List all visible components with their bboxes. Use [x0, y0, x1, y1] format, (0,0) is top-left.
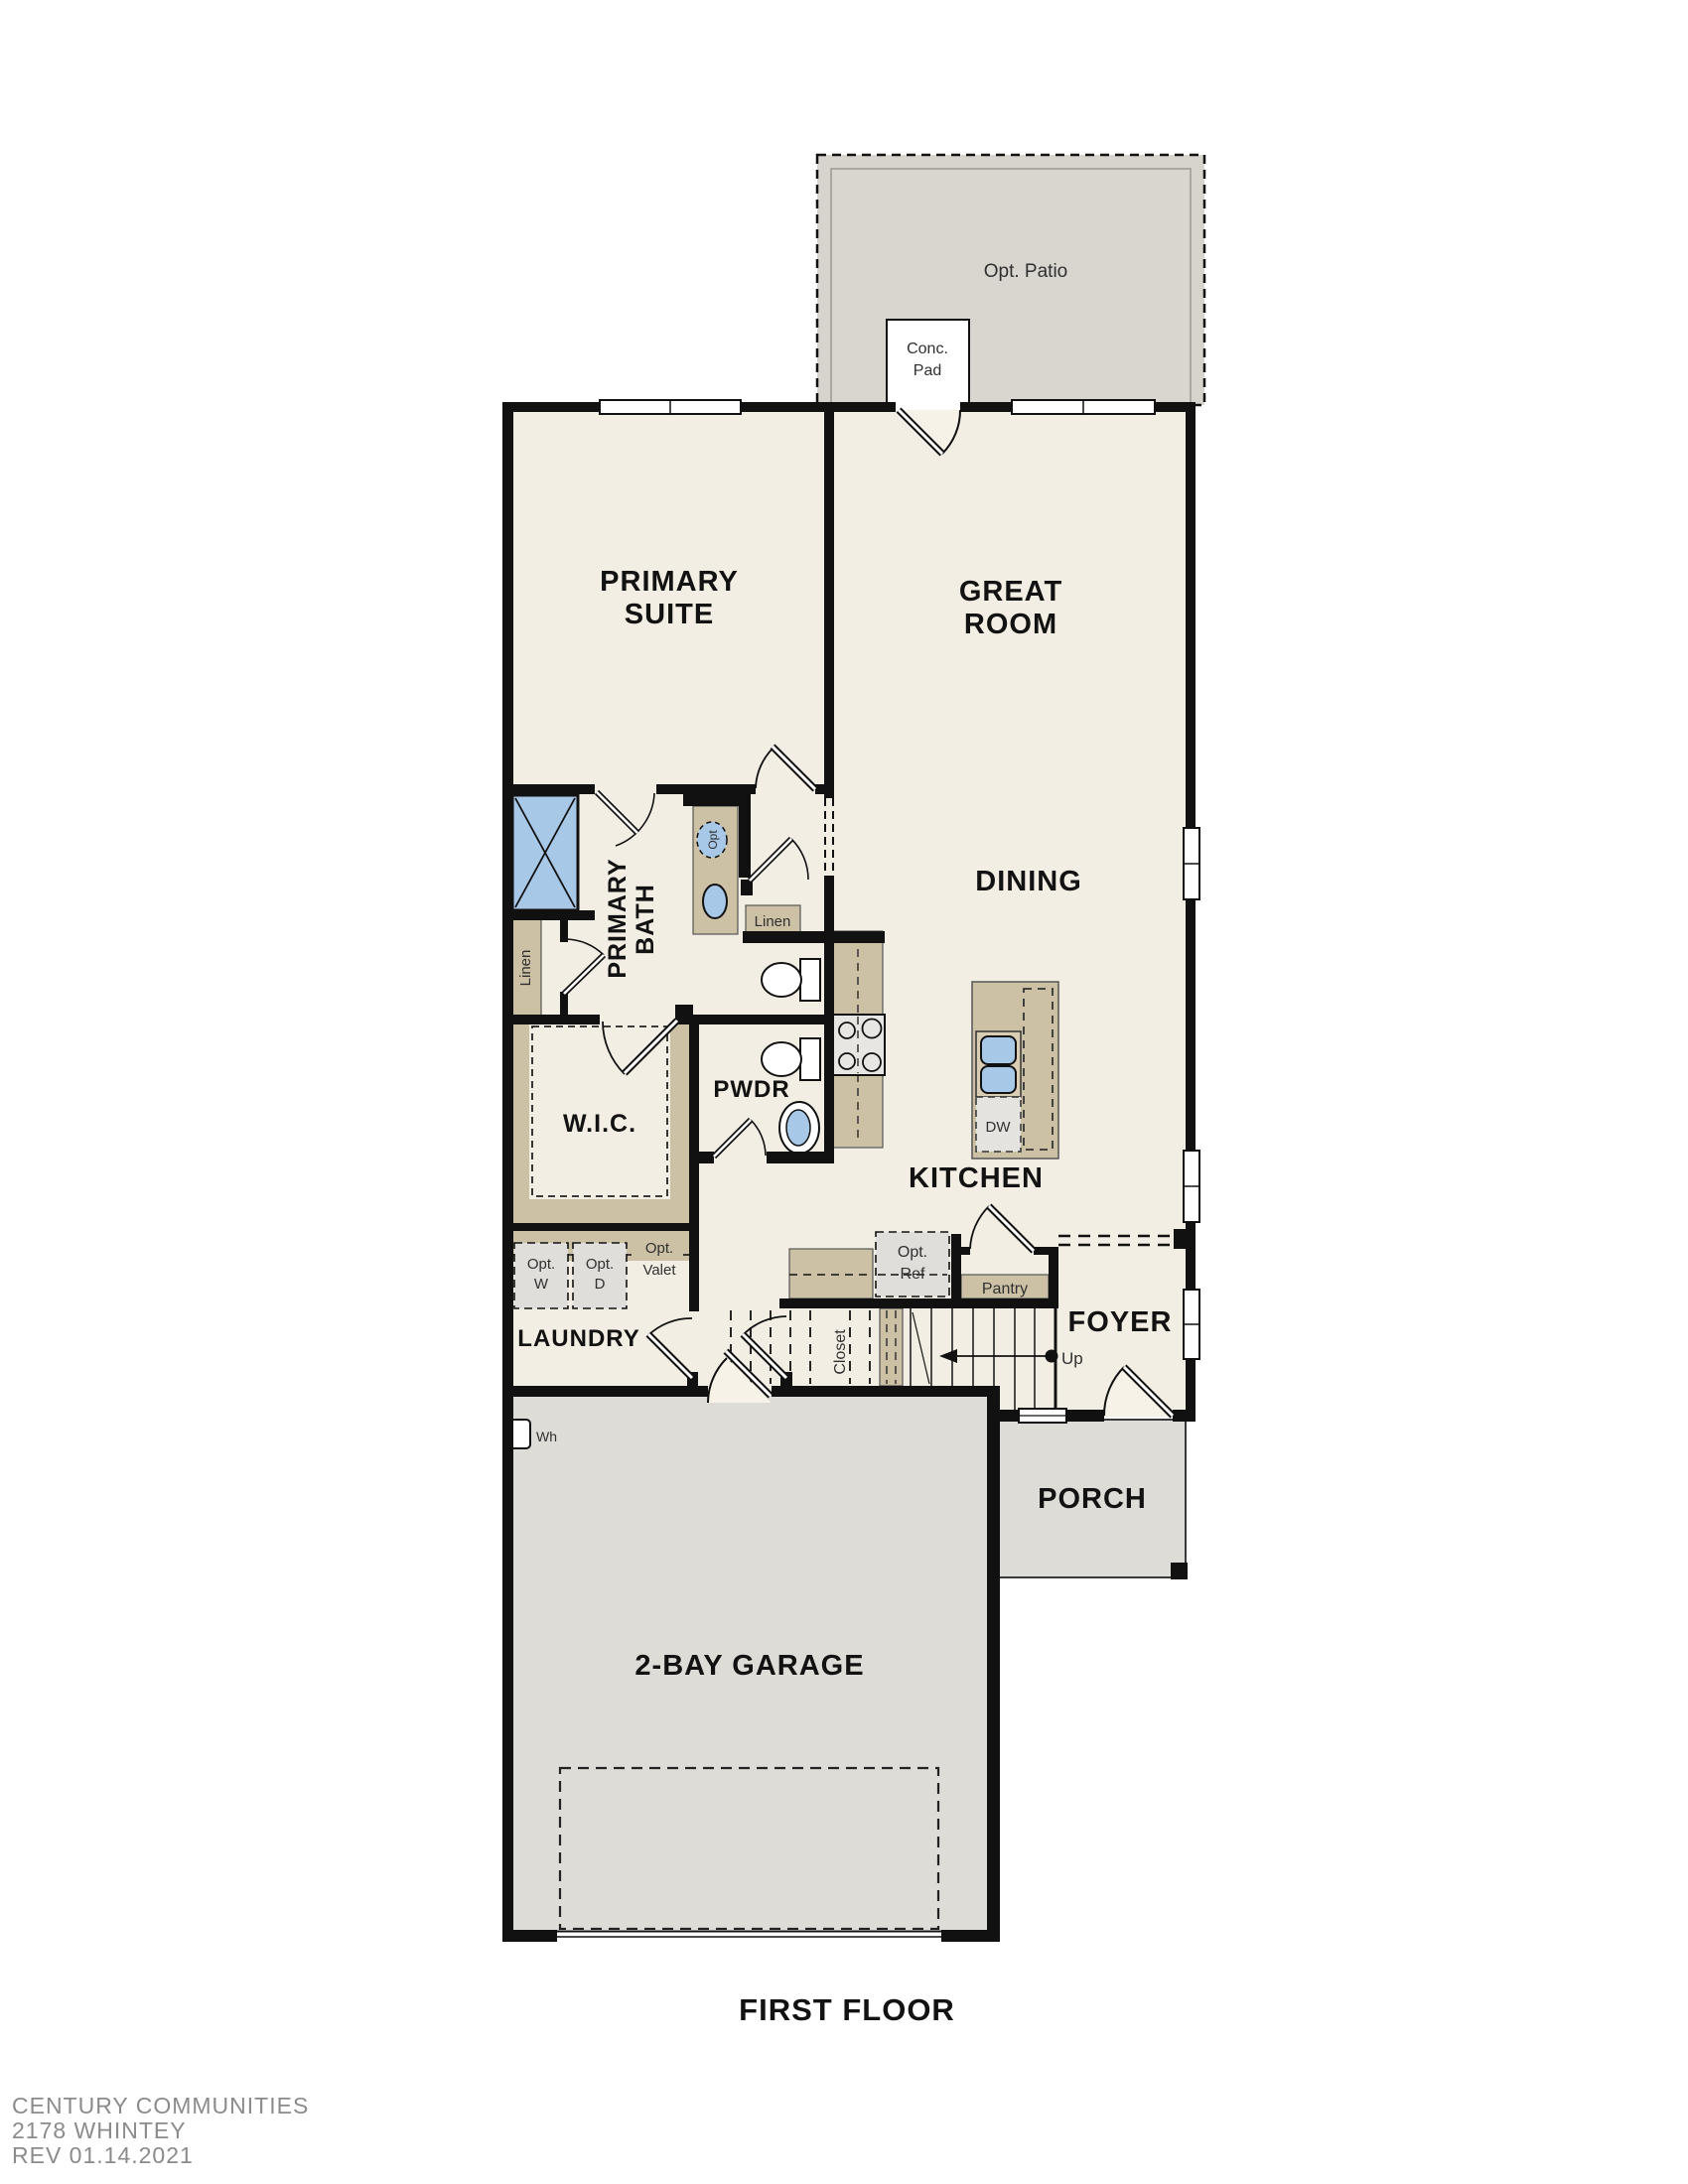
- svg-text:Ref: Ref: [901, 1266, 925, 1283]
- svg-text:ROOM: ROOM: [964, 609, 1057, 640]
- svg-text:W.I.C.: W.I.C.: [563, 1110, 636, 1138]
- svg-text:FIRST FLOOR: FIRST FLOOR: [739, 1992, 955, 2027]
- svg-text:Pantry: Pantry: [982, 1281, 1028, 1297]
- svg-text:PORCH: PORCH: [1038, 1483, 1147, 1515]
- svg-text:Linen: Linen: [755, 913, 791, 930]
- svg-text:Opt.: Opt.: [586, 1256, 614, 1273]
- svg-text:REV 01.14.2021: REV 01.14.2021: [12, 2142, 194, 2168]
- svg-text:GREAT: GREAT: [959, 576, 1062, 608]
- svg-text:Linen: Linen: [517, 950, 534, 987]
- svg-text:Opt.: Opt.: [645, 1240, 673, 1257]
- svg-text:Up: Up: [1061, 1349, 1083, 1368]
- svg-text:Opt: Opt: [706, 830, 720, 850]
- svg-text:PWDR: PWDR: [713, 1076, 789, 1103]
- svg-text:Opt.: Opt.: [527, 1256, 555, 1273]
- svg-text:Opt. Patio: Opt. Patio: [984, 261, 1068, 282]
- svg-text:BATH: BATH: [632, 884, 659, 955]
- svg-text:2-BAY GARAGE: 2-BAY GARAGE: [634, 1650, 864, 1682]
- svg-text:CENTURY COMMUNITIES: CENTURY COMMUNITIES: [12, 2093, 309, 2118]
- svg-text:Conc.: Conc.: [907, 341, 948, 357]
- svg-text:Pad: Pad: [914, 362, 941, 379]
- svg-text:FOYER: FOYER: [1068, 1306, 1173, 1338]
- svg-text:KITCHEN: KITCHEN: [909, 1162, 1044, 1194]
- svg-text:Valet: Valet: [642, 1262, 676, 1279]
- svg-text:2178 WHINTEY: 2178 WHINTEY: [12, 2117, 187, 2143]
- svg-text:PRIMARY: PRIMARY: [604, 858, 632, 978]
- svg-text:Closet: Closet: [832, 1329, 849, 1375]
- svg-text:W: W: [534, 1276, 549, 1293]
- svg-text:Opt.: Opt.: [898, 1244, 927, 1261]
- svg-text:PRIMARY: PRIMARY: [600, 566, 739, 598]
- svg-text:SUITE: SUITE: [625, 599, 714, 630]
- svg-text:DINING: DINING: [975, 866, 1082, 897]
- svg-text:LAUNDRY: LAUNDRY: [517, 1325, 639, 1352]
- svg-text:Wh: Wh: [536, 1429, 557, 1444]
- svg-text:DW: DW: [986, 1119, 1012, 1136]
- svg-text:D: D: [595, 1276, 606, 1293]
